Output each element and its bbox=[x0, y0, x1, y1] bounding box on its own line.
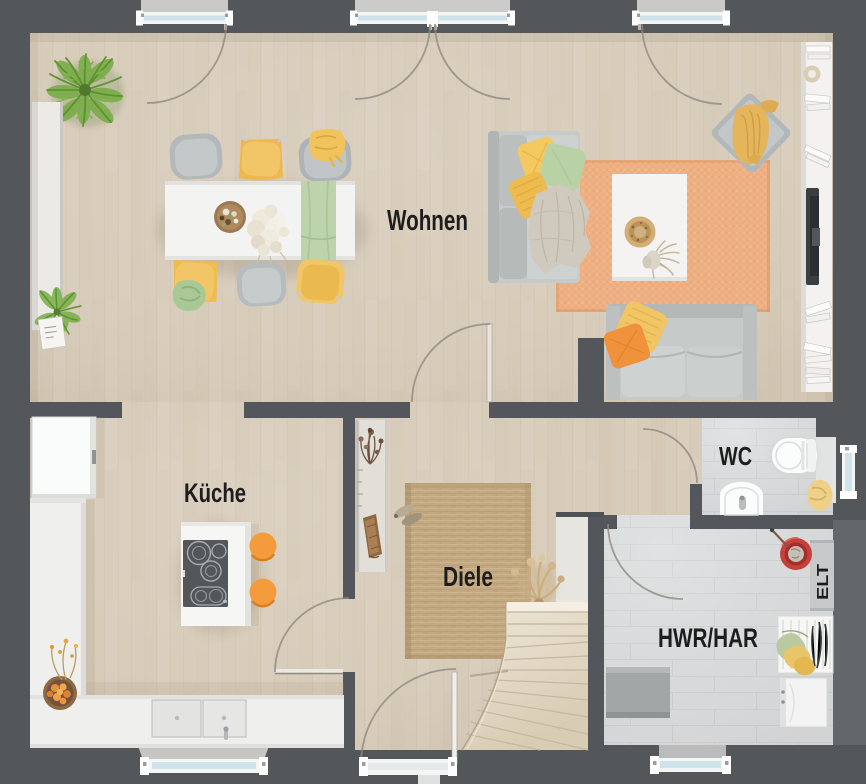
svg-text:Küche: Küche bbox=[184, 478, 246, 508]
svg-text:WC: WC bbox=[719, 441, 752, 471]
svg-text:Diele: Diele bbox=[443, 561, 493, 592]
svg-text:Wohnen: Wohnen bbox=[387, 205, 468, 237]
svg-text:HWR/HAR: HWR/HAR bbox=[658, 623, 758, 653]
svg-text:ELT: ELT bbox=[815, 564, 832, 600]
